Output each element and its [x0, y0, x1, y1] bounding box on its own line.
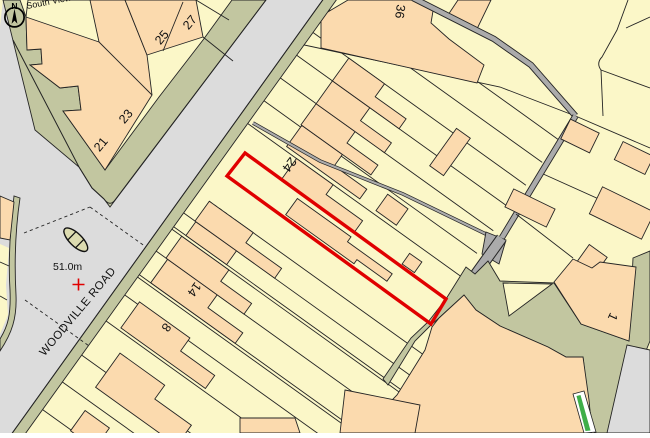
svg-text:N: N — [11, 1, 17, 11]
svg-text:51.0m: 51.0m — [53, 261, 82, 273]
svg-text:36: 36 — [392, 4, 408, 20]
